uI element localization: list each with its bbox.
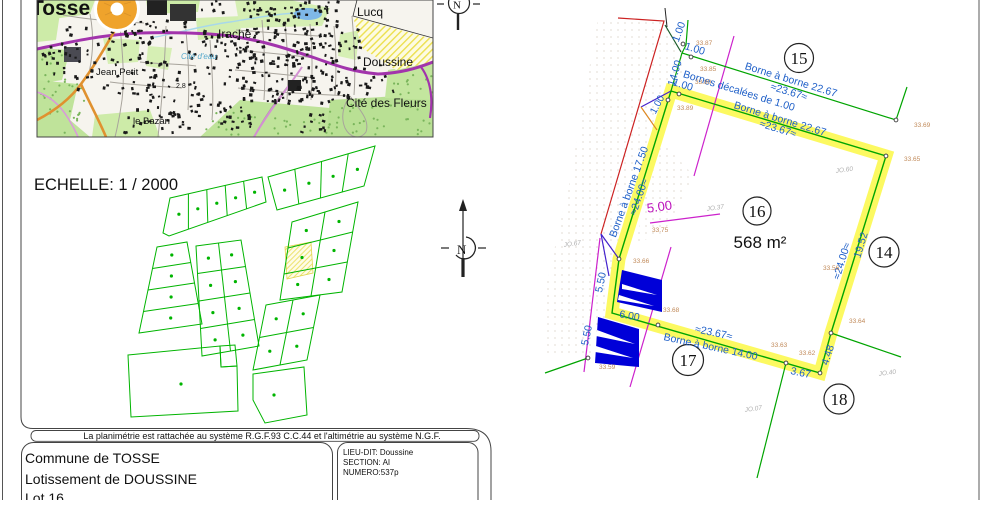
svg-text:Cité des Fleurs: Cité des Fleurs [346,96,427,110]
svg-text:33.68: 33.68 [663,307,680,314]
svg-text:2.8: 2.8 [176,83,186,90]
svg-text:33.80: 33.80 [695,79,712,86]
svg-text:33.64: 33.64 [849,318,866,325]
svg-text:Jean Petit: Jean Petit [96,67,139,78]
svg-text:NUMERO:537p: NUMERO:537p [343,468,399,477]
svg-text:18: 18 [831,390,848,409]
svg-text:16: 16 [749,202,766,221]
svg-text:33.63: 33.63 [771,342,788,349]
svg-text:Lotissement de DOUSSINE: Lotissement de DOUSSINE [25,471,197,487]
svg-text:15: 15 [791,49,808,68]
svg-text:33.59: 33.59 [599,364,616,371]
svg-text:N: N [457,242,467,257]
svg-text:33.56: 33.56 [823,265,840,272]
svg-text:14: 14 [876,243,894,262]
svg-text:33.75: 33.75 [652,227,669,234]
svg-text:Doussine: Doussine [363,55,413,69]
svg-text:N: N [453,0,461,12]
svg-text:33.65: 33.65 [904,156,921,163]
svg-text:33.87: 33.87 [696,40,713,47]
svg-text:33.62: 33.62 [799,350,816,357]
svg-text:17: 17 [680,351,698,370]
svg-text:Cité d'eau: Cité d'eau [181,52,217,61]
svg-text:Tosse: Tosse [31,0,90,20]
svg-text:SECTION: AI: SECTION: AI [343,458,390,467]
svg-text:Lucq: Lucq [357,5,383,19]
svg-text:Lot 16: Lot 16 [25,490,64,500]
svg-text:33.85: 33.85 [700,66,717,73]
svg-text:33.69: 33.69 [914,122,931,129]
svg-text:Irache: Irache [218,27,252,41]
svg-text:ECHELLE: 1 / 2000: ECHELLE: 1 / 2000 [34,176,178,194]
svg-text:33.89: 33.89 [677,105,694,112]
svg-text:LIEU-DIT: Doussine: LIEU-DIT: Doussine [343,448,414,457]
svg-text:Commune de TOSSE: Commune de TOSSE [25,450,160,466]
svg-text:le Bazan: le Bazan [133,116,170,127]
svg-text:La planimétrie est rattachée a: La planimétrie est rattachée au système … [83,431,440,441]
svg-text:33.66: 33.66 [633,258,650,265]
svg-text:568 m²: 568 m² [734,233,787,252]
